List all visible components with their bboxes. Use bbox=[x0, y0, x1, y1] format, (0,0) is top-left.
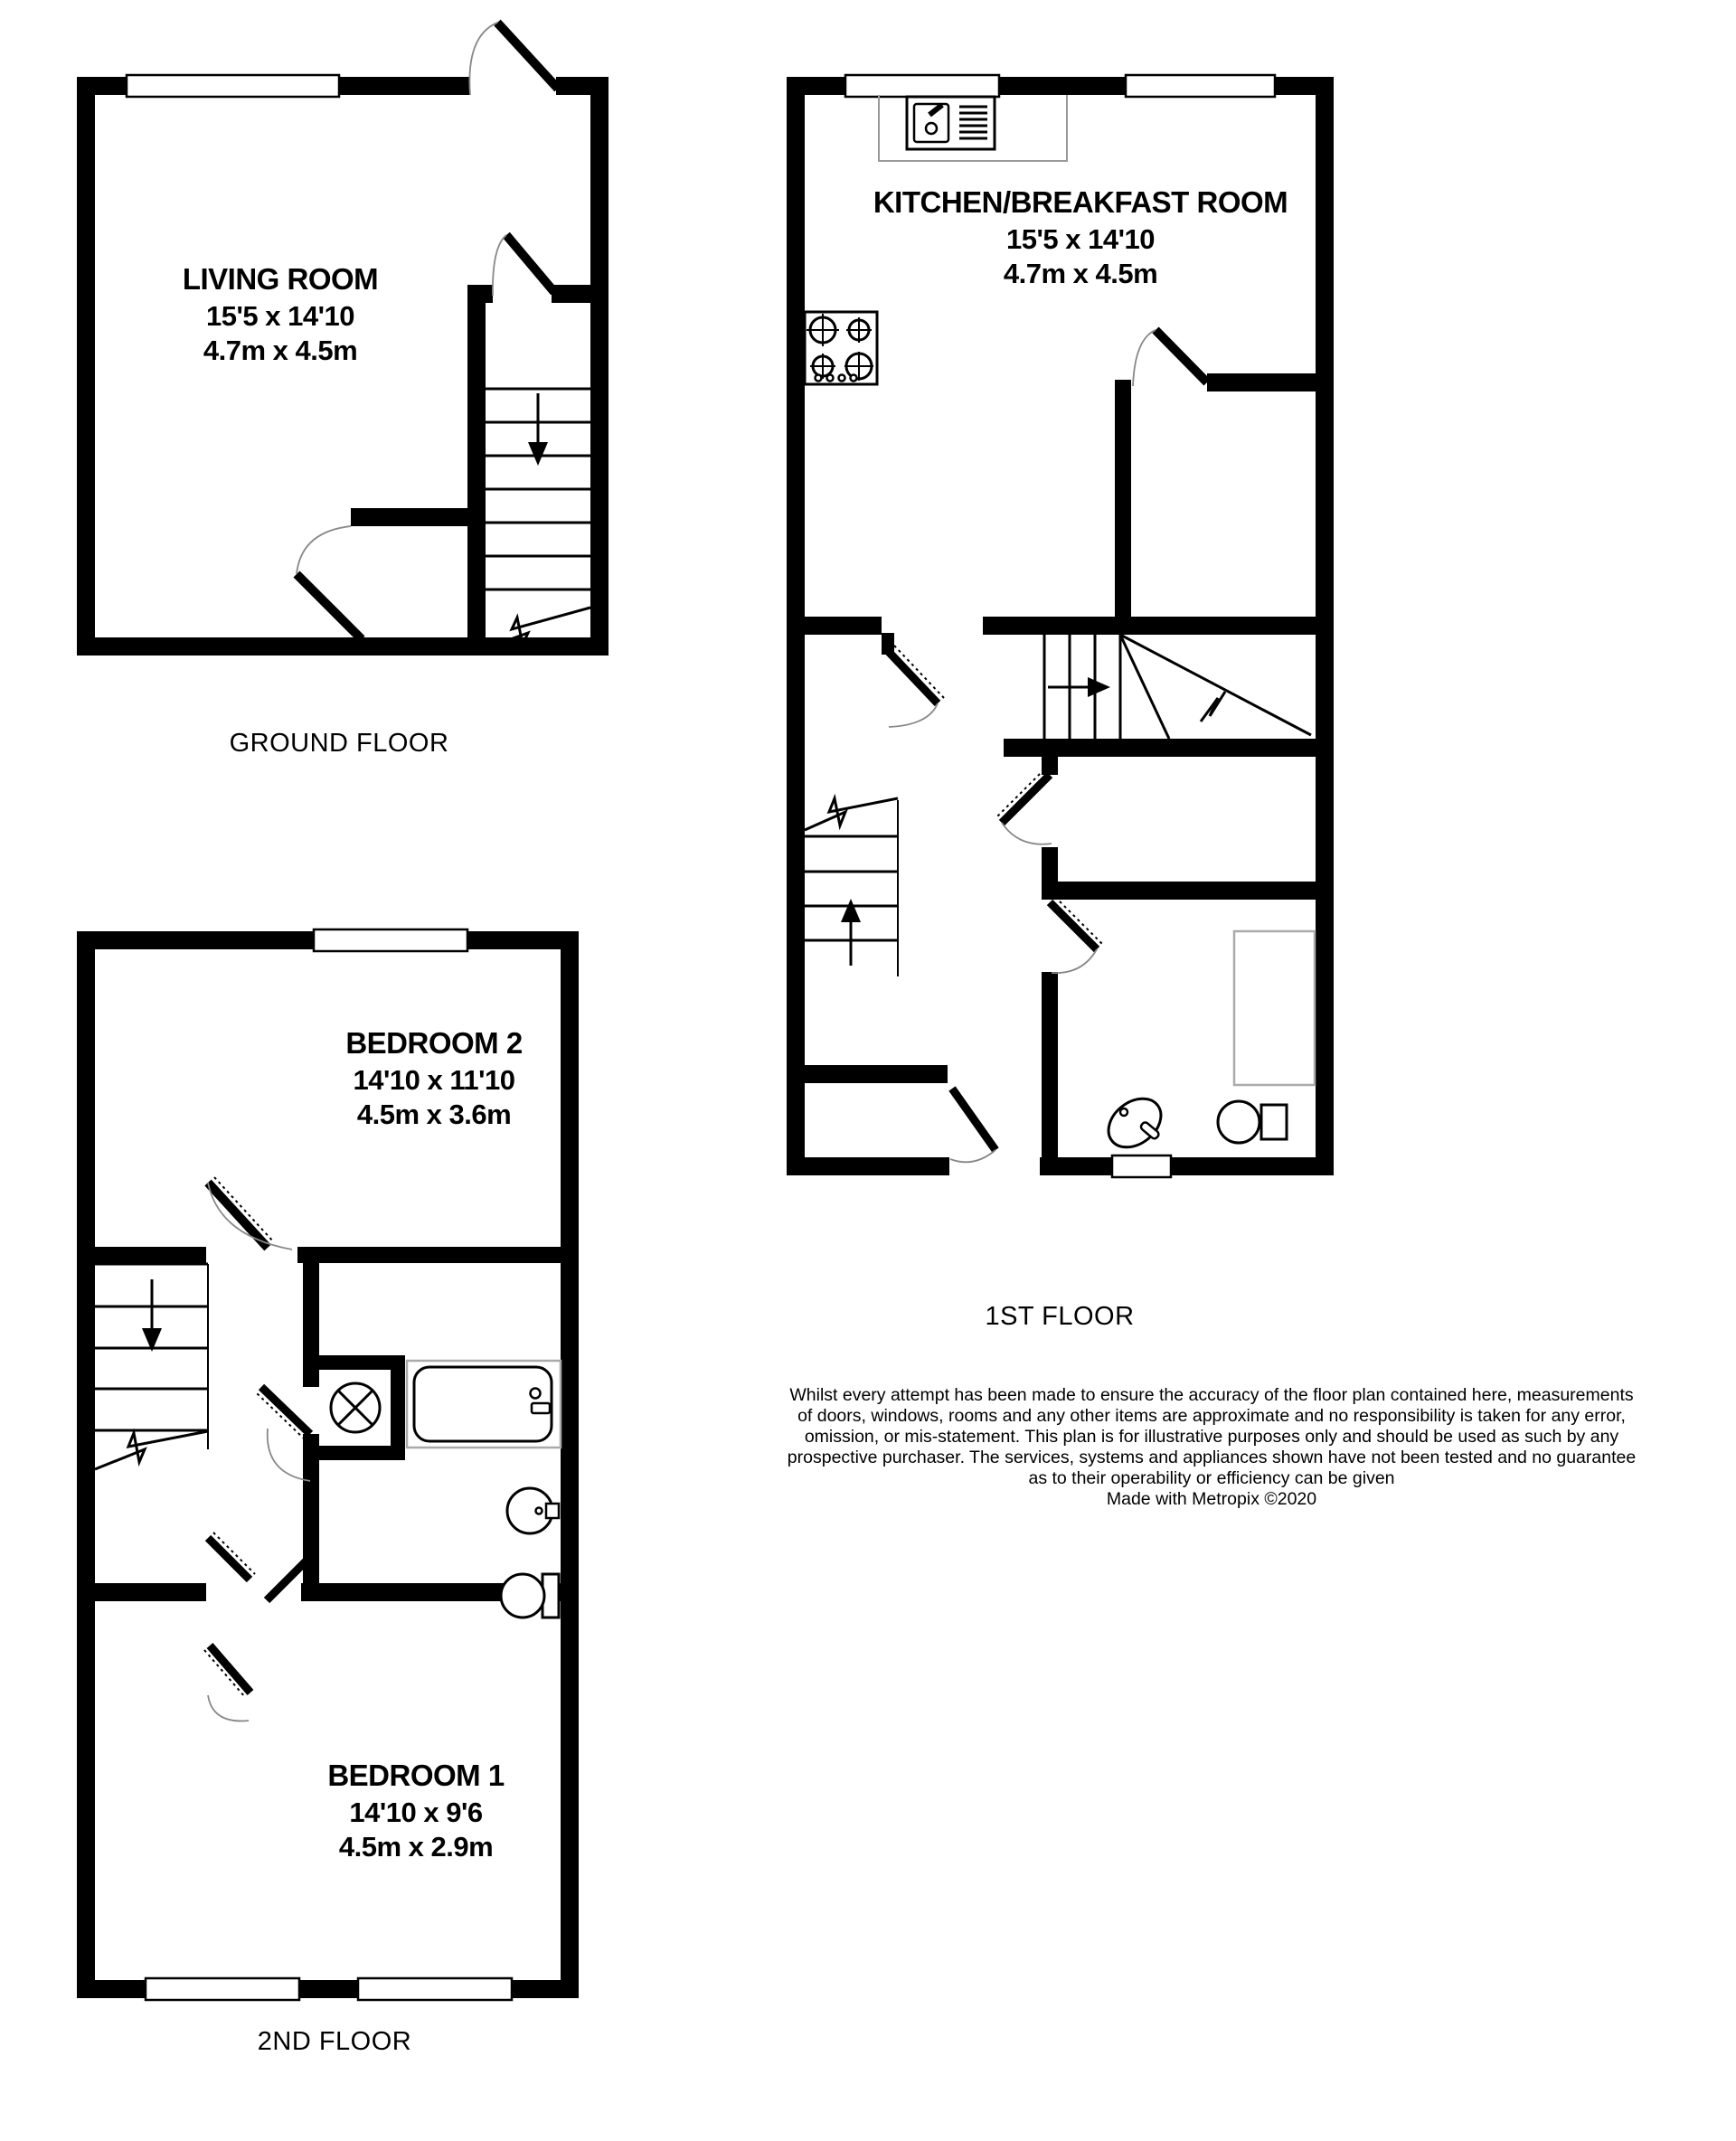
disclaimer-line: omission, or mis-statement. This plan is… bbox=[674, 1427, 1736, 1448]
room-name: LIVING ROOM bbox=[183, 262, 378, 296]
disclaimer-line: Whilst every attempt has been made to en… bbox=[674, 1385, 1736, 1406]
winder-line bbox=[1120, 635, 1169, 739]
bedroom1-window-right bbox=[358, 1978, 512, 2000]
floorplan-page: { "page": { "background": "#ffffff" }, "… bbox=[0, 0, 1736, 2141]
first-floor-plan: KITCHEN/BREAKFAST ROOM 15'5 x 14'10 4.7m… bbox=[782, 72, 1338, 1180]
room-size-metric: 4.7m x 4.5m bbox=[203, 335, 357, 366]
bathroom-door bbox=[256, 1387, 310, 1481]
room-name: KITCHEN/BREAKFAST ROOM bbox=[873, 185, 1288, 219]
living-room-label: LIVING ROOM 15'5 x 14'10 4.7m x 4.5m bbox=[183, 262, 378, 366]
living-room-window bbox=[127, 75, 339, 97]
kitchen-label: KITCHEN/BREAKFAST ROOM 15'5 x 14'10 4.7m… bbox=[873, 185, 1288, 289]
stair-break-line bbox=[805, 798, 898, 830]
bedroom1-label: BEDROOM 1 14'10 x 9'6 4.5m x 2.9m bbox=[327, 1759, 505, 1863]
disclaimer-line: of doors, windows, rooms and any other i… bbox=[674, 1406, 1736, 1427]
bedroom1-doors bbox=[204, 1533, 308, 1721]
stairs-up-arrow-icon bbox=[841, 899, 861, 966]
room-name: BEDROOM 1 bbox=[327, 1759, 505, 1792]
landing-room-door bbox=[996, 769, 1052, 844]
disclaimer-text: Whilst every attempt has been made to en… bbox=[674, 1385, 1736, 1510]
first-floor-caption: 1ST FLOOR bbox=[788, 1302, 1331, 1332]
bedroom2-door bbox=[208, 1177, 292, 1250]
hob-icon bbox=[805, 312, 877, 384]
second-floor-plan: BEDROOM 2 14'10 x 11'10 4.5m x 3.6m BEDR… bbox=[72, 927, 597, 2003]
toilet-icon bbox=[501, 1574, 559, 1618]
room-size-imperial: 15'5 x 14'10 bbox=[206, 300, 354, 332]
staircase-down bbox=[486, 389, 590, 648]
room-size-metric: 4.5m x 3.6m bbox=[357, 1099, 511, 1130]
kitchen-window-left bbox=[845, 75, 999, 97]
bathtub-icon bbox=[407, 1361, 561, 1448]
kitchen-window-right bbox=[1126, 75, 1275, 97]
room-size-metric: 4.5m x 2.9m bbox=[339, 1831, 493, 1863]
room-size-imperial: 15'5 x 14'10 bbox=[1006, 223, 1155, 255]
disclaimer-credit: Made with Metropix ©2020 bbox=[674, 1489, 1736, 1510]
stair-break-line bbox=[1201, 692, 1225, 722]
front-door bbox=[469, 23, 558, 95]
basin-icon bbox=[507, 1488, 559, 1533]
stair-break-line bbox=[95, 1431, 208, 1469]
bedroom2-label: BEDROOM 2 14'10 x 11'10 4.5m x 3.6m bbox=[345, 1026, 523, 1130]
bathroom-door bbox=[1050, 897, 1102, 973]
room-size-metric: 4.7m x 4.5m bbox=[1004, 258, 1157, 289]
staircase-from-ground bbox=[805, 798, 898, 976]
room-size-imperial: 14'10 x 9'6 bbox=[349, 1797, 482, 1828]
winder-line bbox=[1120, 635, 1311, 735]
bedroom1-window-left bbox=[146, 1978, 299, 2000]
bedroom2-window bbox=[314, 929, 467, 951]
stairs-right-arrow-icon bbox=[1048, 677, 1110, 697]
staircase-up-to-2nd bbox=[1044, 635, 1311, 739]
room-size-imperial: 14'10 x 11'10 bbox=[354, 1064, 515, 1096]
ground-floor-walls bbox=[77, 77, 609, 656]
airing-cupboard bbox=[1234, 931, 1315, 1085]
hall-bottom-door bbox=[297, 526, 362, 639]
sink-icon bbox=[907, 97, 995, 149]
basin-icon bbox=[1099, 1089, 1171, 1157]
ground-floor-caption: GROUND FLOOR bbox=[68, 729, 610, 759]
kitchen-hall-door bbox=[888, 646, 944, 727]
ground-floor-plan: LIVING ROOM 15'5 x 14'10 4.7m x 4.5m bbox=[59, 14, 619, 665]
staircase-down-to-1st bbox=[95, 1264, 208, 1469]
disclaimer-line: prospective purchaser. The services, sys… bbox=[674, 1448, 1736, 1468]
bathroom-window bbox=[1112, 1155, 1171, 1177]
stair-hall-door bbox=[493, 235, 554, 296]
stairs-down-arrow-icon bbox=[142, 1279, 162, 1352]
room-name: BEDROOM 2 bbox=[345, 1026, 523, 1060]
kitchen-lobby-door bbox=[1133, 330, 1207, 386]
shower-icon bbox=[331, 1383, 380, 1432]
hall-cupboard-door bbox=[950, 1089, 995, 1162]
toilet-icon bbox=[1218, 1101, 1287, 1143]
second-floor-caption: 2ND FLOOR bbox=[63, 2027, 606, 2057]
disclaimer-line: as to their operability or efficiency ca… bbox=[674, 1468, 1736, 1489]
